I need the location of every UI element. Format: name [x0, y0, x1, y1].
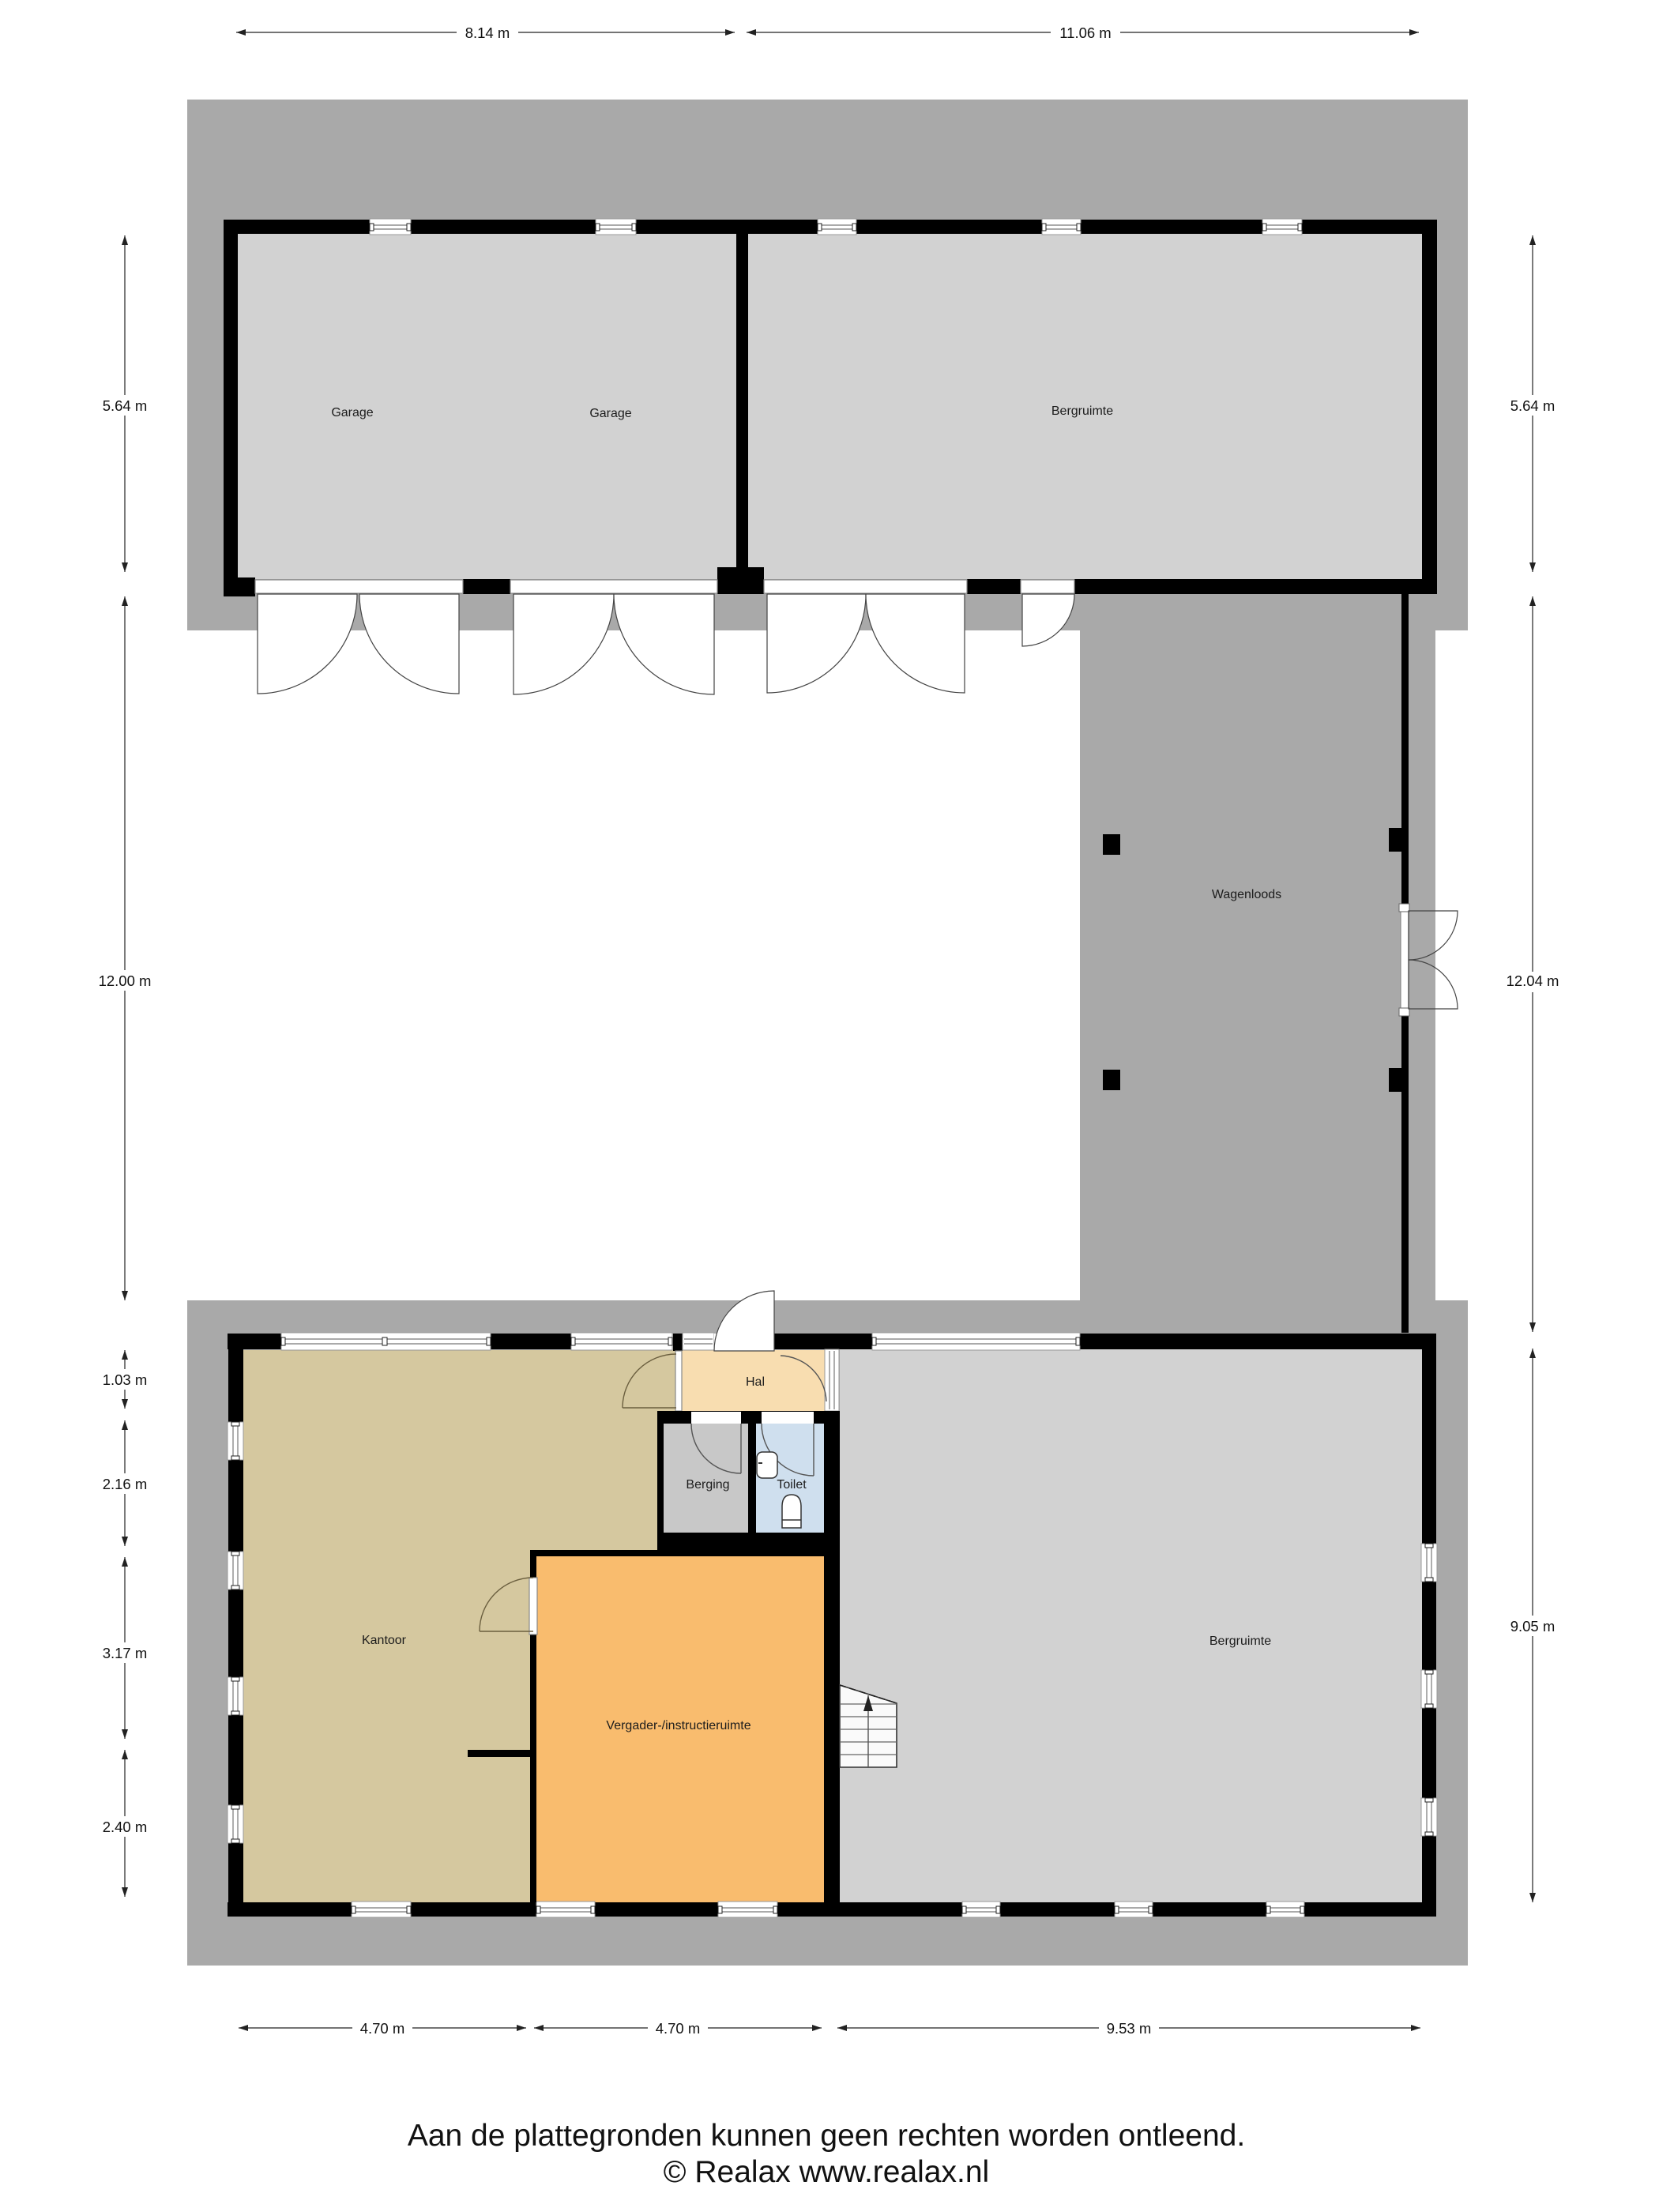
svg-text:Aan de plattegronden kunnen ge: Aan de plattegronden kunnen geen rechten… [408, 2119, 1245, 2153]
svg-text:5.64 m: 5.64 m [103, 397, 148, 414]
svg-text:1.03 m: 1.03 m [103, 1371, 148, 1388]
svg-text:Garage: Garage [331, 406, 373, 419]
svg-text:Kantoor: Kantoor [362, 1634, 407, 1647]
svg-text:4.70 m: 4.70 m [360, 2020, 405, 2037]
svg-text:3.17 m: 3.17 m [103, 1645, 148, 1661]
svg-text:Bergruimte: Bergruimte [1209, 1635, 1271, 1648]
svg-text:Toilet: Toilet [777, 1478, 807, 1492]
svg-text:© Realax www.realax.nl: © Realax www.realax.nl [664, 2155, 989, 2189]
svg-text:Wagenloods: Wagenloods [1212, 888, 1281, 901]
svg-text:Vergader-/instructieruimte: Vergader-/instructieruimte [606, 1719, 750, 1732]
svg-text:9.53 m: 9.53 m [1107, 2020, 1152, 2037]
svg-text:Hal: Hal [746, 1375, 765, 1389]
svg-text:Bergruimte: Bergruimte [1051, 404, 1113, 418]
svg-text:8.14 m: 8.14 m [465, 24, 510, 41]
svg-text:Berging: Berging [686, 1478, 729, 1492]
svg-text:11.06 m: 11.06 m [1059, 24, 1111, 41]
svg-text:9.05 m: 9.05 m [1510, 1618, 1556, 1635]
svg-text:2.16 m: 2.16 m [103, 1476, 148, 1492]
svg-text:12.04 m: 12.04 m [1507, 972, 1559, 989]
svg-text:12.00 m: 12.00 m [99, 972, 152, 989]
svg-text:5.64 m: 5.64 m [1510, 397, 1556, 414]
svg-text:4.70 m: 4.70 m [656, 2020, 701, 2037]
svg-text:2.40 m: 2.40 m [103, 1819, 148, 1835]
svg-text:Garage: Garage [589, 407, 631, 420]
